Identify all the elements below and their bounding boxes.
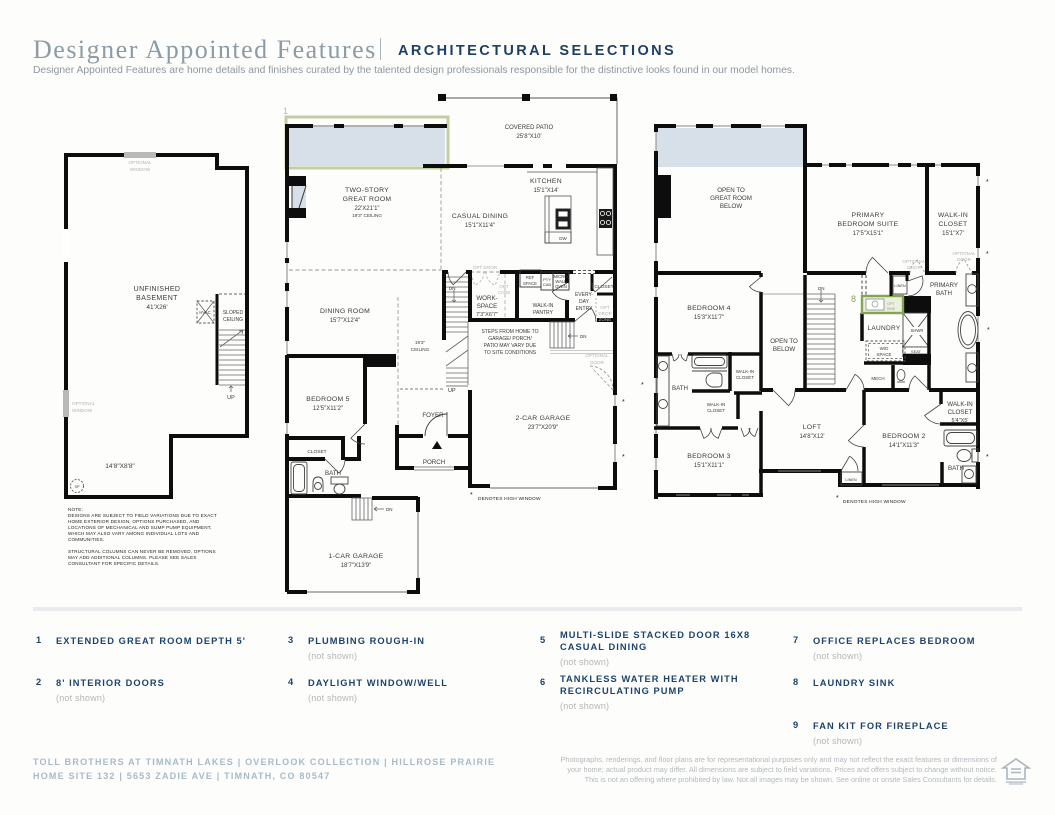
svg-text:CLOSET: CLOSET — [939, 221, 968, 228]
svg-text:19'3": 19'3" — [415, 340, 426, 345]
svg-text:OVEN: OVEN — [555, 284, 567, 289]
svg-text:REF: REF — [526, 275, 535, 280]
svg-text:BATH: BATH — [325, 470, 341, 477]
svg-text:WALK-IN: WALK-IN — [736, 369, 755, 374]
svg-text:LOCATIONS OF MECHANICAL AND SU: LOCATIONS OF MECHANICAL AND SUMP PUMP EQ… — [68, 525, 212, 530]
svg-text:OPT: OPT — [600, 305, 610, 310]
svg-text:*: * — [986, 251, 989, 258]
svg-text:UP: UP — [448, 388, 456, 394]
svg-text:MAY ADD ADDITIONAL COLUMNS. PL: MAY ADD ADDITIONAL COLUMNS. PLEASE SEE S… — [68, 555, 197, 560]
svg-text:BEDROOM 2: BEDROOM 2 — [882, 433, 926, 440]
svg-text:WALK-IN: WALK-IN — [938, 212, 968, 219]
svg-text:17'5"X15'1": 17'5"X15'1" — [853, 231, 884, 237]
svg-text:SPACE: SPACE — [877, 352, 892, 357]
svg-text:OPEN TO: OPEN TO — [717, 187, 745, 194]
svg-text:TO SITE CONDITIONS: TO SITE CONDITIONS — [484, 350, 537, 356]
svg-text:OPT: OPT — [887, 302, 895, 306]
svg-text:SEAT: SEAT — [911, 349, 922, 354]
svg-text:5'4"X5': 5'4"X5' — [952, 418, 969, 424]
svg-text:25'8"X10': 25'8"X10' — [516, 134, 541, 140]
svg-text:GREAT ROOM: GREAT ROOM — [710, 195, 752, 202]
svg-text:OPTIONAL: OPTIONAL — [952, 251, 976, 256]
svg-text:BELOW: BELOW — [773, 346, 796, 353]
svg-text:DESIGNS ARE SUBJECT TO FIELD V: DESIGNS ARE SUBJECT TO FIELD VARIATIONS … — [68, 513, 217, 518]
svg-text:PRIMARY: PRIMARY — [930, 282, 958, 289]
svg-text:WINDOW: WINDOW — [72, 408, 93, 413]
svg-text:WHICH MAY ALSO VARY AMONG INDI: WHICH MAY ALSO VARY AMONG INDIVIDUAL LOT… — [68, 531, 200, 536]
svg-text:OPEN TO: OPEN TO — [770, 338, 798, 345]
svg-text:DW: DW — [559, 236, 567, 241]
svg-text:GARAGE/ PORCH/: GARAGE/ PORCH/ — [488, 336, 532, 342]
svg-text:18'7"X13'9": 18'7"X13'9" — [341, 563, 372, 569]
svg-text:ZONE: ZONE — [599, 317, 612, 322]
svg-text:7'3"X6'7": 7'3"X6'7" — [476, 312, 498, 318]
svg-text:CLOSET: CLOSET — [736, 375, 754, 380]
svg-text:SINK: SINK — [887, 307, 896, 311]
svg-text:BEDROOM 5: BEDROOM 5 — [306, 396, 350, 403]
svg-text:DAY: DAY — [579, 299, 590, 305]
svg-text:*: * — [622, 399, 625, 406]
svg-text:CLOSET: CLOSET — [948, 409, 973, 416]
svg-text:*: * — [622, 454, 625, 461]
svg-text:CONSULTANT FOR SPECIFIC DETAIL: CONSULTANT FOR SPECIFIC DETAILS. — [68, 561, 160, 566]
svg-text:15'1"X11'4": 15'1"X11'4" — [465, 223, 495, 229]
svg-text:WORK-: WORK- — [476, 295, 497, 302]
svg-text:PORCH: PORCH — [423, 459, 445, 466]
svg-text:WALK-IN: WALK-IN — [707, 402, 726, 407]
svg-text:*: * — [986, 454, 989, 461]
svg-text:15'1"X7': 15'1"X7' — [942, 231, 964, 237]
svg-text:FOYER: FOYER — [422, 412, 444, 419]
svg-text:LINEN: LINEN — [894, 284, 905, 288]
svg-text:23'7"X20'9": 23'7"X20'9" — [528, 425, 559, 431]
svg-text:HOME EXTERIOR DESIGN, OPTIONS: HOME EXTERIOR DESIGN, OPTIONS PURCHASED,… — [68, 519, 200, 524]
svg-text:CASUAL DINING: CASUAL DINING — [452, 213, 509, 220]
svg-text:BATH: BATH — [948, 465, 964, 472]
svg-text:WINDOW: WINDOW — [130, 167, 151, 172]
svg-text:EVERY-: EVERY- — [575, 292, 593, 298]
svg-text:*: * — [470, 492, 473, 499]
svg-text:DN: DN — [449, 286, 456, 291]
svg-text:HVAC: HVAC — [199, 310, 210, 315]
svg-text:BEDROOM SUITE: BEDROOM SUITE — [838, 221, 899, 228]
svg-text:LINEN: LINEN — [845, 478, 856, 482]
svg-text:BELOW: BELOW — [720, 203, 743, 210]
svg-text:41'X26': 41'X26' — [146, 304, 167, 311]
svg-text:19'3" CEILING: 19'3" CEILING — [352, 213, 382, 218]
svg-text:DN: DN — [818, 286, 825, 291]
svg-text:15'3"X11'7": 15'3"X11'7" — [694, 315, 724, 321]
svg-text:CLOSET: CLOSET — [307, 449, 326, 455]
svg-text:12'5"X11'2": 12'5"X11'2" — [313, 406, 343, 412]
svg-text:2-CAR GARAGE: 2-CAR GARAGE — [516, 415, 571, 422]
svg-text:ENTRY: ENTRY — [576, 306, 594, 312]
svg-text:DN: DN — [580, 334, 587, 339]
svg-text:PANTRY: PANTRY — [533, 310, 553, 316]
svg-text:KITCHEN: KITCHEN — [530, 178, 562, 185]
svg-text:*: * — [836, 495, 839, 502]
svg-text:22'X21'1": 22'X21'1" — [354, 206, 379, 212]
svg-text:PATIO MAY VARY DUE: PATIO MAY VARY DUE — [484, 343, 537, 349]
svg-text:DOOR: DOOR — [590, 360, 604, 365]
svg-text:DENOTES HIGH WINDOW: DENOTES HIGH WINDOW — [478, 496, 541, 502]
svg-text:14'8"X8'8": 14'8"X8'8" — [105, 463, 135, 470]
svg-text:WALK-IN: WALK-IN — [533, 303, 554, 309]
svg-text:DOOR: DOOR — [907, 265, 921, 270]
svg-text:OPTIONAL: OPTIONAL — [128, 160, 152, 165]
svg-text:OPTIONAL: OPTIONAL — [902, 259, 926, 264]
svg-text:CEILING: CEILING — [411, 347, 430, 352]
svg-text:15'1"X11'1": 15'1"X11'1" — [694, 463, 724, 469]
svg-text:UNFINISHED: UNFINISHED — [134, 286, 181, 293]
svg-text:*: * — [987, 327, 990, 334]
svg-text:BASEMENT: BASEMENT — [136, 295, 178, 302]
svg-text:1-CAR GARAGE: 1-CAR GARAGE — [329, 553, 384, 560]
svg-text:DN: DN — [386, 507, 393, 512]
svg-text:SPACE: SPACE — [477, 303, 498, 310]
svg-text:DROP: DROP — [598, 311, 611, 316]
svg-text:OPT: OPT — [499, 284, 509, 289]
svg-text:15'7"X12'4": 15'7"X12'4" — [330, 318, 361, 324]
svg-text:BATH: BATH — [936, 290, 952, 297]
svg-text:DENOTES HIGH WINDOW: DENOTES HIGH WINDOW — [843, 499, 906, 505]
svg-text:OPT DOOR: OPT DOOR — [473, 265, 498, 270]
svg-text:BATH: BATH — [672, 385, 688, 392]
svg-text:STEPS FROM HOME TO: STEPS FROM HOME TO — [481, 329, 538, 335]
svg-text:CLOSET: CLOSET — [594, 284, 613, 290]
svg-text:SP: SP — [74, 485, 80, 489]
svg-text:14'8"X12': 14'8"X12' — [799, 434, 824, 440]
svg-text:MECH: MECH — [871, 376, 884, 381]
svg-text:CEILING: CEILING — [223, 317, 243, 323]
svg-text:STRUCTURAL COLUMNS CAN NEVER B: STRUCTURAL COLUMNS CAN NEVER BE REMOVED,… — [68, 549, 216, 554]
svg-text:CAB: CAB — [543, 282, 552, 287]
svg-text:NOTE:: NOTE: — [68, 507, 83, 512]
svg-text:LOFT: LOFT — [803, 424, 822, 431]
svg-text:TWO-STORY: TWO-STORY — [345, 187, 389, 194]
svg-text:LAUNDRY: LAUNDRY — [867, 325, 900, 332]
svg-text:SHWR: SHWR — [911, 328, 924, 333]
svg-text:SLOPED: SLOPED — [223, 310, 244, 316]
svg-text:15'1"X14': 15'1"X14' — [533, 188, 558, 194]
svg-text:GREAT ROOM: GREAT ROOM — [343, 196, 392, 203]
svg-text:*: * — [986, 179, 989, 186]
svg-text:CABS: CABS — [498, 290, 511, 295]
svg-text:BEDROOM 4: BEDROOM 4 — [687, 305, 731, 312]
svg-text:WALK-IN: WALK-IN — [947, 401, 973, 408]
svg-text:COVERED PATIO: COVERED PATIO — [505, 125, 554, 131]
svg-text:8: 8 — [851, 294, 856, 304]
svg-text:SPACE: SPACE — [523, 281, 537, 286]
svg-text:W/D: W/D — [880, 346, 889, 351]
svg-text:DOOR: DOOR — [957, 257, 971, 262]
svg-text:CLOSET: CLOSET — [707, 408, 725, 413]
svg-text:UP: UP — [227, 395, 235, 401]
svg-text:OPTIONAL: OPTIONAL — [585, 353, 609, 358]
svg-text:1: 1 — [283, 106, 288, 116]
svg-text:OPTIONAL: OPTIONAL — [72, 401, 96, 406]
svg-text:*: * — [641, 382, 644, 389]
svg-text:PRIMARY: PRIMARY — [852, 212, 885, 219]
svg-text:COMMUNITIES.: COMMUNITIES. — [68, 537, 104, 542]
svg-text:BEDROOM 3: BEDROOM 3 — [687, 453, 731, 460]
svg-text:14'1"X11'3": 14'1"X11'3" — [889, 443, 919, 449]
svg-text:DINING ROOM: DINING ROOM — [320, 308, 370, 315]
